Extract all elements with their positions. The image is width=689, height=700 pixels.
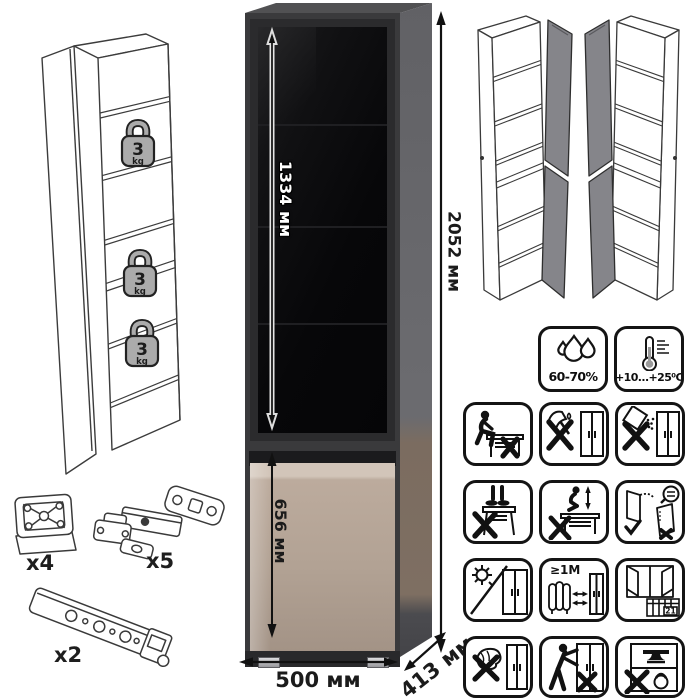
icon-tile-no-dragging xyxy=(539,636,609,698)
humidity-icon xyxy=(545,334,601,370)
no-spill-icon xyxy=(619,406,681,462)
heater-distance-label: ≥1М xyxy=(550,563,580,577)
door-adjustment-icon xyxy=(619,484,681,540)
arrow-total-height xyxy=(436,11,445,653)
icon-tile-door-adjustment xyxy=(615,480,685,544)
dimension-width: 500 мм xyxy=(258,670,378,691)
no-axe-icon xyxy=(543,406,605,462)
icon-tile-no-sharp-tools xyxy=(539,402,609,466)
no-sunlight-icon xyxy=(467,562,529,618)
glass-reflection xyxy=(258,27,316,149)
assembly-instruction-sheet: 3 kg 3 kg 3 kg xyxy=(0,0,689,700)
cabinet-foot-right xyxy=(367,657,389,668)
weight-unit: kg xyxy=(134,287,146,297)
weight-unit: kg xyxy=(132,157,144,167)
icon-tile-no-wet-cleaning xyxy=(463,636,533,698)
icon-tile-no-sitting xyxy=(463,402,533,466)
icon-tile-heater-distance: ≥1М xyxy=(539,558,609,622)
foot-quantity: x4 xyxy=(26,553,54,574)
cabinet-foot-left xyxy=(258,657,280,668)
no-jumping-icon xyxy=(543,484,605,540)
icon-tile-no-standing xyxy=(463,480,533,544)
thermometer-icon xyxy=(621,335,677,371)
icon-tile-humidity: 60-70% xyxy=(538,326,608,392)
no-standing-icon xyxy=(467,484,529,540)
open-door-outline xyxy=(42,46,96,474)
dimension-glass-height: 1334 мм xyxy=(277,154,293,244)
wireframe-open-cabinets-left-right-variants xyxy=(468,8,689,312)
dimension-total-height: 2052 мм xyxy=(445,202,462,302)
icon-tile-no-jumping xyxy=(539,480,609,544)
icon-tile-temperature: +10...+25⁰C xyxy=(614,326,684,392)
cabinet-side-panel xyxy=(400,3,432,660)
icon-tile-no-direct-sunlight xyxy=(463,558,533,622)
no-overload-icon xyxy=(619,640,681,694)
heater-distance-icon: ≥1М xyxy=(543,562,605,618)
icon-tile-no-overloading xyxy=(615,636,685,698)
icon-tile-no-spilling xyxy=(615,402,685,466)
humidity-range-label: 60-70% xyxy=(549,371,598,384)
ventilation-window-icon: 21 xyxy=(619,562,681,618)
dimension-lower-door-height: 656 мм xyxy=(272,491,288,571)
temperature-range-label: +10...+25⁰C xyxy=(615,372,683,383)
weight-unit: kg xyxy=(136,357,148,367)
no-dragging-icon xyxy=(543,640,605,694)
icon-tile-ventilation: 21 xyxy=(615,558,685,622)
no-wet-cloth-icon xyxy=(467,640,529,694)
glass-door-frame xyxy=(250,19,395,441)
calendar-day-label: 21 xyxy=(665,607,675,616)
wireframe-cabinet-shelf-load-diagram: 3 kg 3 kg 3 kg xyxy=(8,30,208,482)
hinge-quantity: x5 xyxy=(146,551,174,572)
mounting-rail-drawing xyxy=(26,576,188,688)
no-sitting-icon xyxy=(467,406,529,462)
cabinet-front xyxy=(245,13,400,657)
rail-quantity: x2 xyxy=(54,645,82,666)
